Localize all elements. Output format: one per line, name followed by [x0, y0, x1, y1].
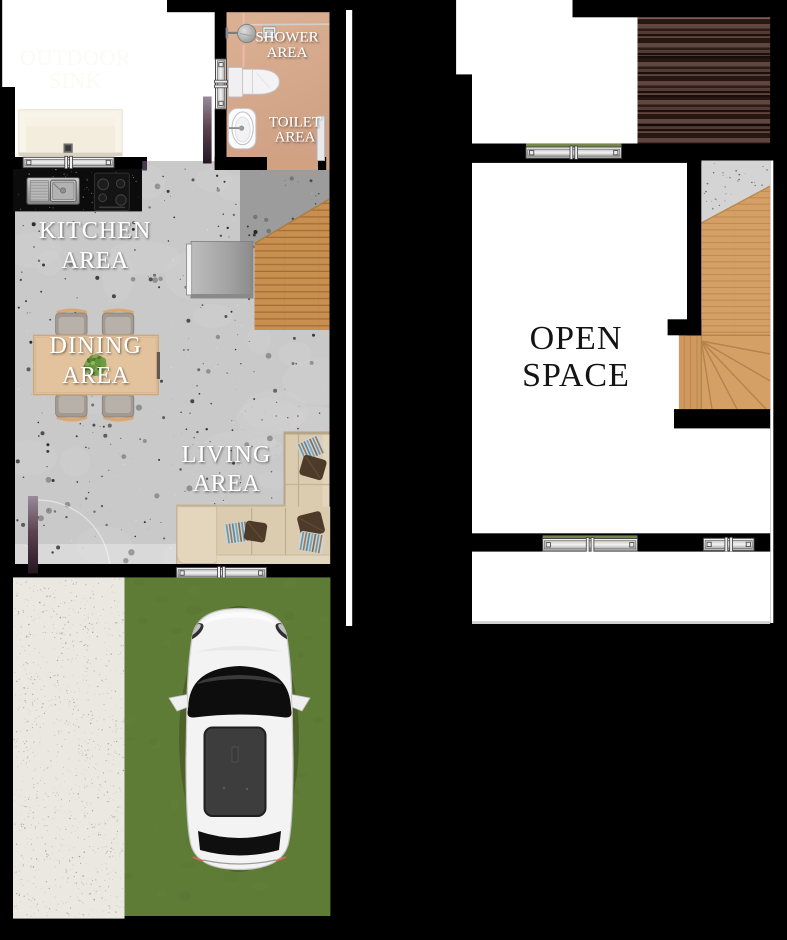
svg-text:AREA: AREA: [275, 130, 316, 146]
svg-text:SPACE: SPACE: [522, 357, 630, 394]
svg-text:AREA: AREA: [62, 363, 130, 389]
svg-text:TOILET: TOILET: [269, 115, 321, 131]
svg-text:AREA: AREA: [61, 248, 129, 274]
svg-text:AREA: AREA: [267, 45, 308, 61]
svg-text:OUTDOOR: OUTDOOR: [20, 45, 131, 70]
svg-text:SINK: SINK: [49, 68, 102, 93]
svg-text:SHOWER: SHOWER: [255, 30, 318, 46]
svg-text:LIVING: LIVING: [182, 442, 272, 468]
svg-text:DINING: DINING: [50, 333, 143, 359]
svg-text:OPEN: OPEN: [530, 320, 623, 357]
svg-text:KITCHEN: KITCHEN: [39, 218, 151, 244]
svg-text:AREA: AREA: [193, 471, 261, 497]
